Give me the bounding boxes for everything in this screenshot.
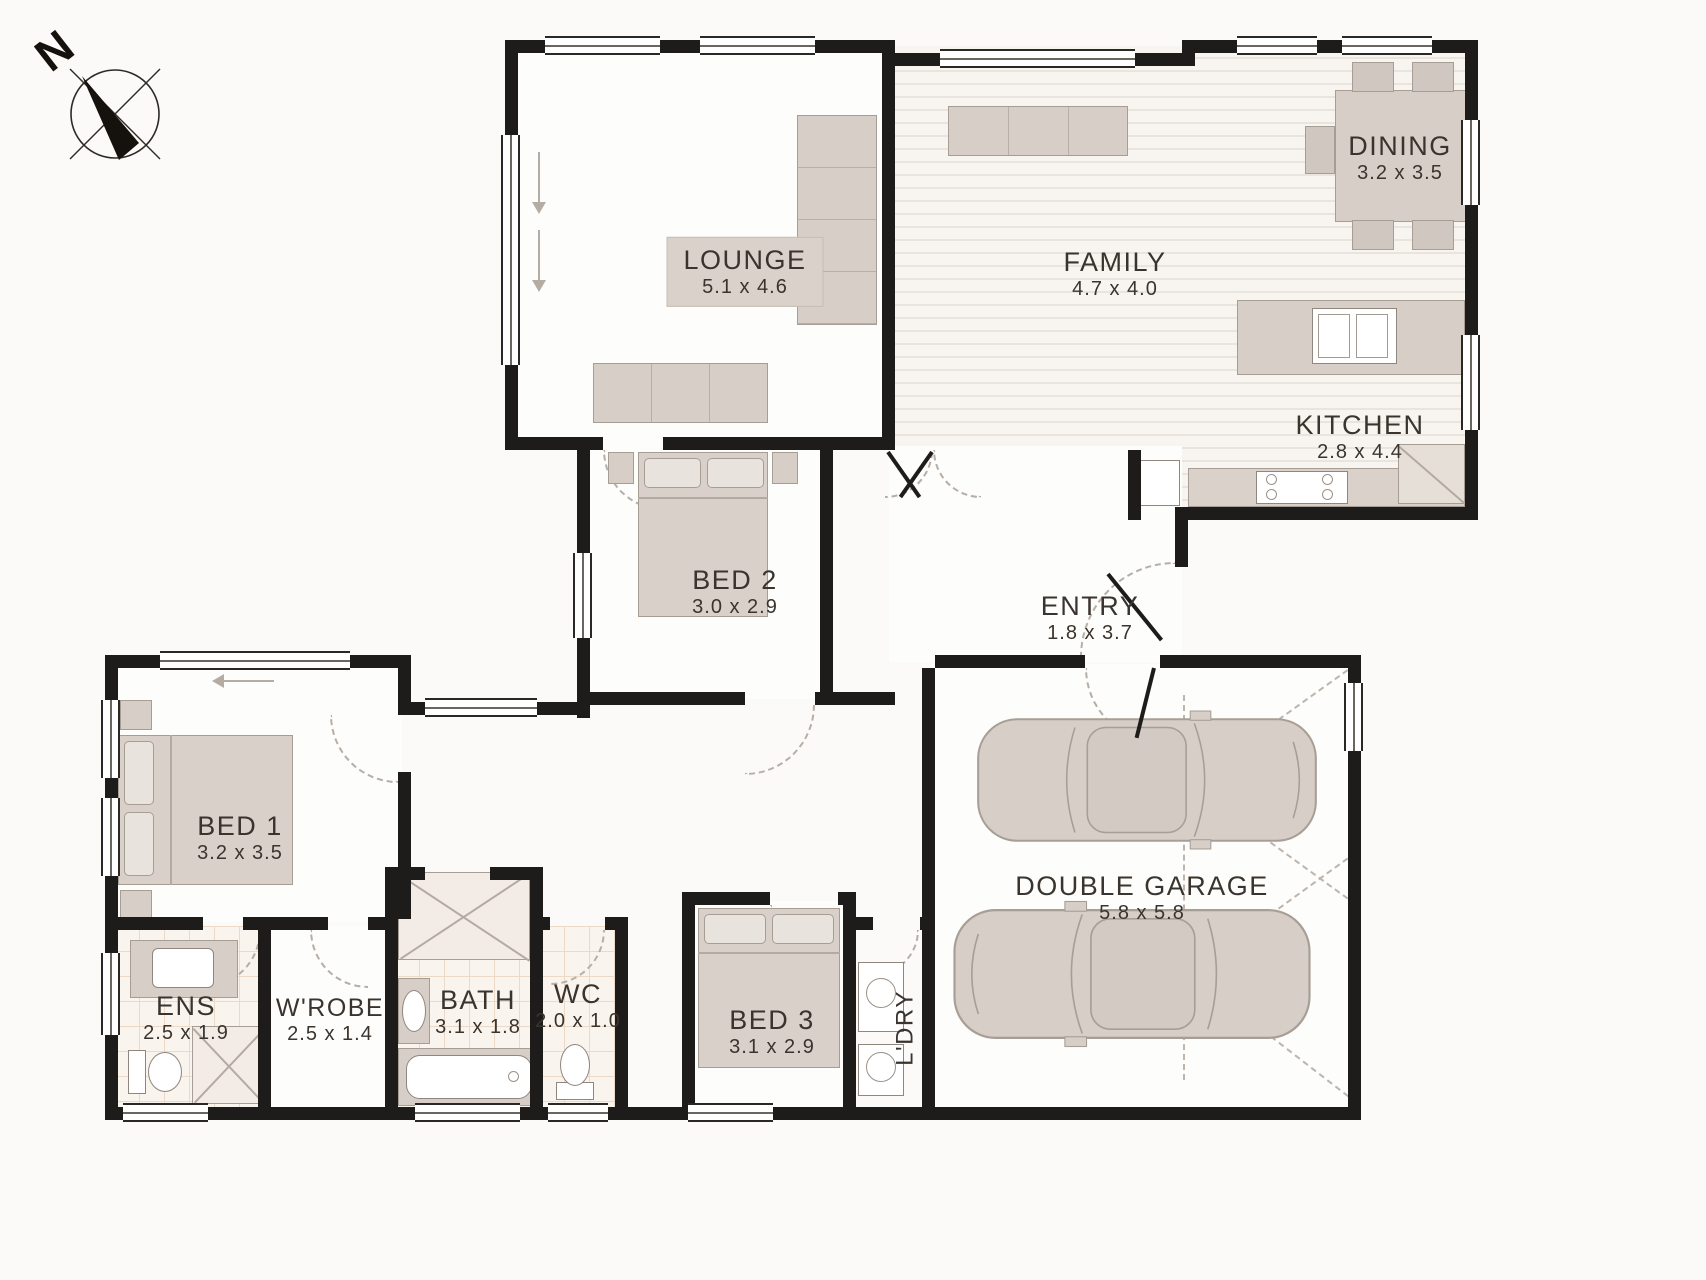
dining-chair <box>1412 62 1454 92</box>
window <box>573 553 592 638</box>
bed3-pillow <box>704 914 766 944</box>
kitchen-sink-basin <box>1356 314 1388 358</box>
wall <box>820 450 833 705</box>
ens-basin <box>152 948 214 988</box>
bed2-pillow <box>707 458 764 488</box>
wall <box>882 66 895 450</box>
bath-basin <box>402 990 426 1032</box>
bathtub-drain <box>508 1071 519 1082</box>
window <box>545 36 660 55</box>
room-label-lounge: LOUNGE 5.1 x 4.6 <box>666 237 823 307</box>
room-label-bed1: BED 1 3.2 x 3.5 <box>197 812 283 864</box>
room-name: W'ROBE <box>276 995 384 1021</box>
wall <box>1175 507 1478 520</box>
room-dims: 2.5 x 1.4 <box>276 1024 384 1045</box>
room-label-kitchen: KITCHEN 2.8 x 4.4 <box>1295 411 1424 463</box>
room-name: DINING <box>1348 132 1452 160</box>
wall <box>922 668 935 1120</box>
room-dims: 3.0 x 2.9 <box>692 597 778 618</box>
room-label-ens: ENS 2.5 x 1.9 <box>143 992 229 1044</box>
window <box>101 798 120 876</box>
room-name: BATH <box>435 986 521 1014</box>
room-dims: 3.1 x 2.9 <box>729 1037 815 1058</box>
bed1-fold-line <box>170 735 172 885</box>
bed1-pillow <box>124 812 154 876</box>
room-dims: 1.8 x 3.7 <box>1041 623 1140 644</box>
room-name: LOUNGE <box>683 246 806 274</box>
wall <box>258 930 271 1107</box>
window <box>1344 683 1363 751</box>
room-dims: 3.2 x 3.5 <box>1348 163 1452 184</box>
room-dims: 4.7 x 4.0 <box>1063 279 1166 300</box>
window <box>1461 335 1480 430</box>
room-name: DOUBLE GARAGE <box>1015 872 1269 900</box>
room-name: WC <box>535 980 621 1008</box>
room-label-dining: DINING 3.2 x 3.5 <box>1348 132 1452 184</box>
wall <box>882 40 895 66</box>
wall <box>815 692 895 705</box>
wall <box>1160 655 1361 668</box>
wall <box>385 867 398 1107</box>
ens-toilet-tank <box>128 1050 146 1094</box>
room-name: KITCHEN <box>1295 411 1424 439</box>
bed3-fold-line <box>698 952 840 954</box>
room-dims: 3.1 x 1.8 <box>435 1017 521 1038</box>
wall <box>1128 450 1141 520</box>
room-dims: 3.2 x 3.5 <box>197 843 283 864</box>
wall <box>843 917 873 930</box>
bed1-pillow <box>124 741 154 805</box>
window <box>940 49 1135 68</box>
room-dims: 2.0 x 1.0 <box>535 1011 621 1032</box>
wall <box>590 692 745 705</box>
room-dims: 5.1 x 4.6 <box>683 277 806 298</box>
bed2-nightstand <box>772 452 798 484</box>
family-sofa <box>948 106 1128 156</box>
bed2-fold-line <box>638 497 768 499</box>
room-label-bed2: BED 2 3.0 x 2.9 <box>692 566 778 618</box>
wall <box>1465 40 1478 520</box>
cooktop-burner <box>1322 489 1333 500</box>
room-name: FAMILY <box>1063 248 1166 276</box>
bed1-nightstand <box>120 700 152 730</box>
room-name: BED 2 <box>692 566 778 594</box>
slide-direction-arrow <box>528 150 550 216</box>
room-name: BED 1 <box>197 812 283 840</box>
bed2-pillow <box>644 458 701 488</box>
wall <box>385 867 425 880</box>
window <box>160 651 350 670</box>
room-label-ldry: L'DRY <box>892 990 917 1066</box>
wall <box>935 655 1085 668</box>
window <box>1342 36 1432 55</box>
wall <box>1175 507 1188 567</box>
room-label-bed3: BED 3 3.1 x 2.9 <box>729 1006 815 1058</box>
dining-chair <box>1305 126 1335 174</box>
window <box>101 700 120 778</box>
car-top-view <box>972 702 1322 858</box>
window <box>1461 120 1480 205</box>
north-compass-icon: N <box>20 12 198 190</box>
svg-text:N: N <box>25 20 83 81</box>
fridge <box>1138 460 1180 506</box>
dining-chair <box>1352 62 1394 92</box>
room-name: BED 3 <box>729 1006 815 1034</box>
room-label-entry: ENTRY 1.8 x 3.7 <box>1041 592 1140 644</box>
wall <box>118 917 203 930</box>
slide-direction-arrow <box>528 228 550 294</box>
window <box>1237 36 1317 55</box>
window <box>425 698 537 717</box>
wall <box>398 772 411 919</box>
bed2-nightstand <box>608 452 634 484</box>
wall <box>663 437 895 450</box>
window <box>123 1103 208 1122</box>
wall <box>505 437 603 450</box>
bed1-nightstand <box>120 890 152 920</box>
door-arc-bed2 <box>745 705 815 775</box>
ens-toilet-bowl <box>148 1052 182 1092</box>
wc-toilet-bowl <box>560 1044 590 1086</box>
room-label-wc: WC 2.0 x 1.0 <box>535 980 621 1032</box>
dining-chair <box>1352 220 1394 250</box>
window <box>548 1103 608 1122</box>
dining-chair <box>1412 220 1454 250</box>
lounge-sofa <box>593 363 768 423</box>
slide-direction-arrow <box>210 670 276 692</box>
room-dims: 2.5 x 1.9 <box>143 1023 229 1044</box>
room-name: ENTRY <box>1041 592 1140 620</box>
room-label-wrobe: W'ROBE 2.5 x 1.4 <box>276 995 384 1045</box>
window <box>101 953 120 1035</box>
cooktop-burner <box>1266 474 1277 485</box>
cooktop-burner <box>1322 474 1333 485</box>
floor-plan: N <box>0 0 1706 1280</box>
wall <box>398 655 411 715</box>
bed3-pillow <box>772 914 834 944</box>
wall <box>1182 40 1478 53</box>
wall <box>605 917 628 930</box>
window <box>415 1103 520 1122</box>
room-dims: 5.8 x 5.8 <box>1015 903 1269 924</box>
wall <box>682 892 770 905</box>
window <box>700 36 815 55</box>
room-label-garage: DOUBLE GARAGE 5.8 x 5.8 <box>1015 872 1269 924</box>
room-dims: 2.8 x 4.4 <box>1295 442 1424 463</box>
room-label-bath: BATH 3.1 x 1.8 <box>435 986 521 1038</box>
wall <box>243 917 328 930</box>
kitchen-sink-basin <box>1318 314 1350 358</box>
room-name: ENS <box>143 992 229 1020</box>
cooktop-burner <box>1266 489 1277 500</box>
wall <box>490 867 543 880</box>
wall <box>682 892 695 1107</box>
window <box>501 135 520 365</box>
room-label-family: FAMILY 4.7 x 4.0 <box>1063 248 1166 300</box>
wall <box>530 917 550 930</box>
room-name: L'DRY <box>892 990 917 1066</box>
window <box>688 1103 773 1122</box>
